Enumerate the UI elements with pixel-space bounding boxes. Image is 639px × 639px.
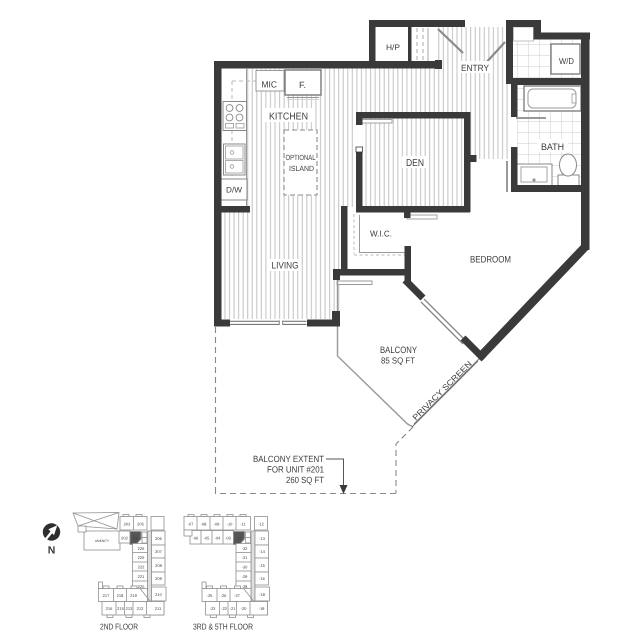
svg-text:LIVING: LIVING xyxy=(272,261,299,272)
svg-text:BALCONY: BALCONY xyxy=(380,345,417,355)
svg-text:211: 211 xyxy=(155,606,162,611)
svg-text:-14: -14 xyxy=(259,549,266,554)
svg-text:D/W: D/W xyxy=(226,186,242,195)
svg-text:-13: -13 xyxy=(259,536,266,541)
svg-text:-04: -04 xyxy=(215,536,222,541)
svg-text:210: 210 xyxy=(155,592,162,597)
svg-text:215: 215 xyxy=(117,606,124,611)
svg-text:203: 203 xyxy=(124,522,131,527)
svg-text:-05: -05 xyxy=(204,536,211,541)
svg-text:207: 207 xyxy=(155,549,162,554)
svg-text:212: 212 xyxy=(137,606,144,611)
svg-text:-18: -18 xyxy=(259,592,266,597)
svg-text:-20: -20 xyxy=(241,606,248,611)
svg-text:217: 217 xyxy=(103,593,110,598)
svg-text:-08: -08 xyxy=(201,522,208,527)
svg-text:-31: -31 xyxy=(242,555,249,560)
svg-text:-19: -19 xyxy=(259,606,266,611)
svg-text:-23: -23 xyxy=(210,606,217,611)
svg-text:85 SQ FT: 85 SQ FT xyxy=(381,356,416,366)
svg-text:260 SQ FT: 260 SQ FT xyxy=(286,475,324,485)
svg-text:-21: -21 xyxy=(230,606,237,611)
svg-text:225: 225 xyxy=(138,555,145,560)
svg-text:-06: -06 xyxy=(193,536,200,541)
svg-text:W/D: W/D xyxy=(559,56,574,66)
svg-text:218: 218 xyxy=(117,593,124,598)
svg-text:FOR UNIT #201: FOR UNIT #201 xyxy=(267,465,324,475)
svg-text:-22: -22 xyxy=(221,606,228,611)
svg-text:226: 226 xyxy=(138,546,145,551)
svg-text:208: 208 xyxy=(155,563,162,568)
svg-text:DEN: DEN xyxy=(406,158,424,169)
svg-text:201: 201 xyxy=(133,537,139,541)
svg-text:MIC: MIC xyxy=(262,80,278,90)
svg-text:-10: -10 xyxy=(227,522,234,527)
svg-text:206: 206 xyxy=(155,536,162,541)
svg-text:-11: -11 xyxy=(240,522,246,527)
svg-text:-25: -25 xyxy=(207,593,214,598)
svg-text:BATH: BATH xyxy=(541,142,564,153)
svg-text:2ND FLOOR: 2ND FLOOR xyxy=(100,622,138,632)
svg-text:-28: -28 xyxy=(242,584,249,589)
svg-text:N: N xyxy=(48,545,56,557)
svg-text:-27: -27 xyxy=(234,593,241,598)
svg-text:-15: -15 xyxy=(259,563,266,568)
svg-text:-12: -12 xyxy=(258,522,265,527)
svg-text:221: 221 xyxy=(138,574,145,579)
svg-text:ENTRY: ENTRY xyxy=(461,63,489,73)
svg-text:AMENITY: AMENITY xyxy=(95,539,110,543)
svg-text:202: 202 xyxy=(121,536,128,541)
svg-text:-26: -26 xyxy=(221,593,228,598)
svg-text:-29: -29 xyxy=(242,574,249,579)
svg-text:-07: -07 xyxy=(188,522,195,527)
svg-text:205: 205 xyxy=(137,522,144,527)
svg-text:BALCONY EXTENT: BALCONY EXTENT xyxy=(253,454,324,464)
svg-text:H/P: H/P xyxy=(386,43,400,52)
svg-text:-01: -01 xyxy=(236,537,241,541)
svg-text:BEDROOM: BEDROOM xyxy=(470,255,511,266)
svg-text:219: 219 xyxy=(130,593,137,598)
svg-text:213: 213 xyxy=(126,606,133,611)
svg-text:KITCHEN: KITCHEN xyxy=(269,112,308,123)
svg-text:-09: -09 xyxy=(214,522,221,527)
svg-text:F.: F. xyxy=(299,80,306,90)
svg-text:222: 222 xyxy=(138,565,145,570)
svg-text:-32: -32 xyxy=(242,546,249,551)
svg-text:-30: -30 xyxy=(242,565,249,570)
svg-text:220: 220 xyxy=(138,584,145,589)
svg-text:ISLAND: ISLAND xyxy=(289,164,315,173)
svg-text:W.I.C.: W.I.C. xyxy=(370,229,392,239)
svg-text:-16: -16 xyxy=(259,576,266,581)
svg-text:216: 216 xyxy=(106,606,113,611)
svg-text:209: 209 xyxy=(155,576,162,581)
svg-text:3RD & 5TH FLOOR: 3RD & 5TH FLOOR xyxy=(193,622,253,632)
svg-text:OPTIONAL: OPTIONAL xyxy=(286,153,316,162)
svg-text:-03: -03 xyxy=(225,536,232,541)
